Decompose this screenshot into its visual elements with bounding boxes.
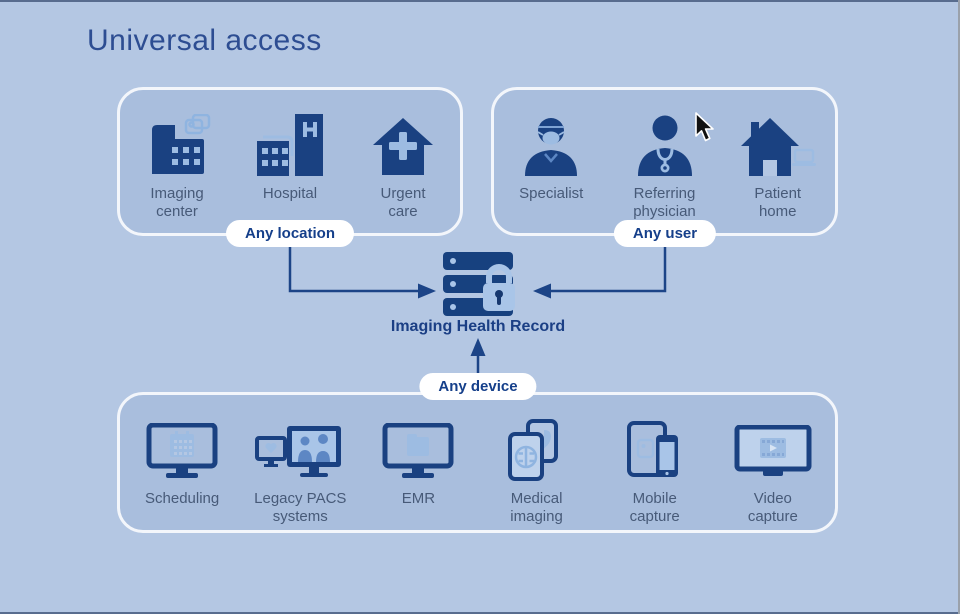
- list-item: Scheduling: [126, 423, 238, 508]
- list-item: EMR: [362, 423, 474, 508]
- list-item: Urgent care: [347, 110, 459, 222]
- patient-home-icon: [739, 114, 817, 176]
- item-label: Urgent care: [380, 185, 425, 222]
- list-item: Medical imaging: [481, 423, 593, 527]
- list-item: Video capture: [717, 423, 829, 527]
- list-item: Legacy PACS systems: [244, 423, 356, 527]
- item-label: Imaging center: [150, 185, 203, 222]
- list-item: Imaging center: [121, 110, 233, 222]
- any-location-group: Imaging center Hospital: [117, 87, 463, 236]
- top-edge-border: [0, 0, 960, 2]
- any-user-group: Specialist Referring physician: [491, 87, 838, 236]
- specialist-icon: [518, 114, 584, 176]
- mobile-capture-icon: [625, 419, 685, 481]
- emr-icon: [382, 423, 454, 481]
- item-label: Video capture: [748, 490, 798, 527]
- hospital-icon: [253, 114, 327, 176]
- item-label: Specialist: [519, 185, 583, 203]
- item-label: Scheduling: [145, 490, 219, 508]
- any-device-pill: Any device: [419, 373, 536, 400]
- medical-imaging-icon: [504, 419, 570, 481]
- any-device-group: Scheduling Legacy PACS systems: [117, 392, 838, 533]
- page-title: Universal access: [87, 24, 322, 58]
- list-item: Specialist: [495, 110, 607, 203]
- any-location-pill: Any location: [226, 220, 354, 247]
- item-label: Referring physician: [633, 185, 696, 222]
- list-item: Mobile capture: [599, 423, 711, 527]
- imaging-center-icon: [140, 114, 214, 176]
- list-item: Patient home: [722, 110, 834, 222]
- item-label: Patient home: [754, 185, 801, 222]
- item-label: Mobile capture: [630, 490, 680, 527]
- item-label: Hospital: [263, 185, 317, 203]
- server-lock-icon: [443, 252, 515, 318]
- item-label: Medical imaging: [510, 490, 563, 527]
- item-label: Legacy PACS systems: [254, 490, 346, 527]
- legacy-pacs-icon: [255, 423, 345, 481]
- any-user-pill: Any user: [614, 220, 716, 247]
- scheduling-icon: [146, 423, 218, 481]
- item-label: EMR: [402, 490, 435, 508]
- list-item: Hospital: [234, 110, 346, 203]
- mouse-pointer-icon: [694, 112, 718, 144]
- referring-physician-icon: [632, 114, 698, 176]
- urgent-care-icon: [371, 116, 435, 176]
- imaging-health-record-label: Imaging Health Record: [391, 318, 565, 336]
- video-capture-icon: [734, 425, 812, 481]
